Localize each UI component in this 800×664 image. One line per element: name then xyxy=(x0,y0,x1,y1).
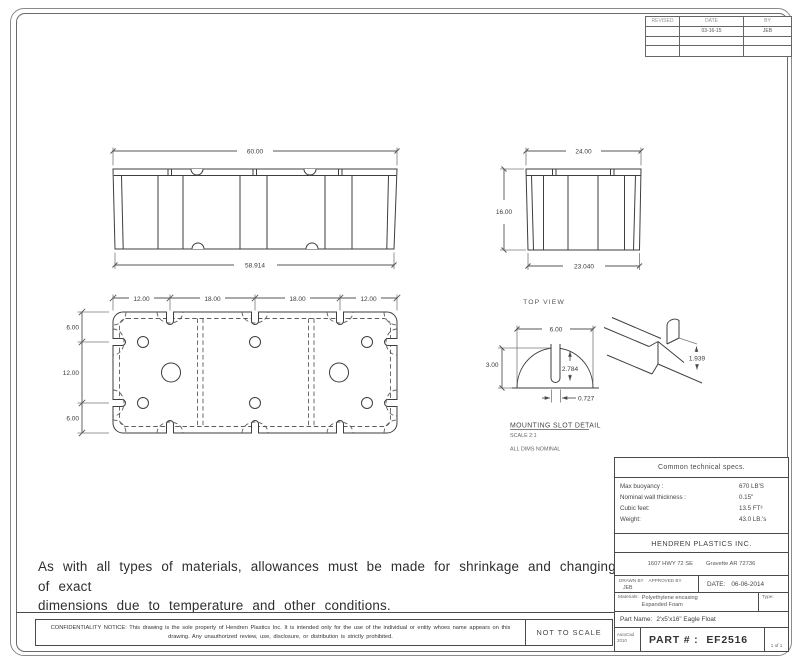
side-height-dim: 16.00 xyxy=(496,209,513,216)
drawn-by-cell: DRAWN BYAPPROVED BY JEB xyxy=(614,575,699,593)
shrinkage-disclaimer: As with all types of materials, allowanc… xyxy=(38,557,620,616)
company-address: 1607 HWY 72 SE Gravette AR 72736 xyxy=(614,552,789,576)
software-version: 2010 xyxy=(617,638,640,644)
top-left-dim-3: 6.00 xyxy=(66,416,79,423)
top-dim-3: 18.00 xyxy=(289,296,306,303)
revision-cell xyxy=(680,46,744,56)
part-name-cell: Part Name: 2'x5'x16" Eagle Float xyxy=(614,611,789,628)
part-number-cell: PART # : EF2516 xyxy=(640,627,765,652)
part-number-value: EF2516 xyxy=(706,634,748,646)
revision-cell xyxy=(744,37,791,47)
side-view: 24.00 23.040 16.00 xyxy=(496,148,641,271)
spec-label: Weight: xyxy=(620,516,641,523)
iso-slot-detail: 1.939 xyxy=(604,318,706,384)
specs-table: Max buoyancy :670 LB'S Nominal wall thic… xyxy=(614,477,789,534)
slot-detail-scale: SCALE 2:1 xyxy=(510,433,537,439)
slot-width-dim: 6.00 xyxy=(550,327,563,334)
company-name: HENDREN PLASTICS INC. xyxy=(614,533,789,553)
spec-value: 670 LB'S xyxy=(739,483,764,490)
type-label: Type: xyxy=(762,595,774,600)
slot-slotwidth-dim: 0.727 xyxy=(578,396,595,403)
side-width-bottom-dim: 23.040 xyxy=(574,264,594,271)
top-left-dim-1: 6.00 xyxy=(66,325,79,332)
materials-label: Materials: xyxy=(618,595,639,611)
spec-row: Cubic feet:13.5 FT³ xyxy=(615,505,788,516)
spec-label: Cubic feet: xyxy=(620,505,650,512)
address-city: Gravette AR 72736 xyxy=(706,561,755,567)
materials-line-1: Polyethylene encasing xyxy=(642,595,698,602)
date-label: DATE: xyxy=(707,581,725,588)
iso-detail-dim: 1.939 xyxy=(689,356,706,363)
disclaimer-line-1: As with all types of materials, allowanc… xyxy=(38,557,620,596)
part-number-label: PART # : xyxy=(649,634,698,646)
spec-value: 0.15" xyxy=(739,494,753,501)
revision-cell xyxy=(646,37,680,47)
confidentiality-notice: CONFIDENTIALITY NOTICE: This drawing is … xyxy=(35,619,526,646)
side-width-top-dim: 24.00 xyxy=(575,149,592,156)
top-view: 12.00 18.00 18.00 12.00 6.00 12.00 6.00 xyxy=(63,295,400,437)
revision-cell xyxy=(744,46,791,56)
spec-label: Nominal wall thickness : xyxy=(620,494,686,501)
top-left-dim-2: 12.00 xyxy=(63,370,80,377)
revision-header-date: DATE xyxy=(680,17,744,27)
spec-row: Weight:43.0 LB.'s xyxy=(615,516,788,527)
spec-value: 43.0 LB.'s xyxy=(739,516,766,523)
specs-title: Common technical specs. xyxy=(614,457,789,478)
date-cell: DATE: 06-06-2014 xyxy=(698,575,789,593)
mounting-slot-detail: 6.00 3.00 2.784 0.727 MOUNTING SLOT DETA… xyxy=(486,326,601,453)
not-to-scale-label: NOT TO SCALE xyxy=(536,628,601,637)
drawn-by-label: DRAWN BY xyxy=(619,578,644,583)
top-dim-2: 18.00 xyxy=(204,296,221,303)
top-dim-1: 12.00 xyxy=(133,296,150,303)
spec-value: 13.5 FT³ xyxy=(739,505,762,512)
top-dim-4: 12.00 xyxy=(360,296,377,303)
revision-cell: JEB xyxy=(744,27,791,37)
title-block: Common technical specs. Max buoyancy :67… xyxy=(614,457,789,652)
sheet-number-cell: 1 of 1 xyxy=(764,627,789,652)
revision-cell xyxy=(646,27,680,37)
revision-cell xyxy=(646,46,680,56)
part-name-value: 2'x5'x16" Eagle Float xyxy=(656,616,715,623)
date-value: 06-06-2014 xyxy=(731,581,764,588)
materials-cell: Materials: Polyethylene encasing Expande… xyxy=(614,592,759,612)
revision-table: REVISED DATE BY 03-16-15 JEB xyxy=(645,16,792,57)
spec-row: Max buoyancy :670 LB'S xyxy=(615,483,788,494)
materials-line-2: Expanded Foam xyxy=(642,602,698,609)
type-cell: Type: xyxy=(758,592,789,612)
front-width-top-dim: 60.00 xyxy=(247,149,264,156)
all-dims-note: ALL DIMS NOMINAL xyxy=(510,447,560,453)
top-view-label: TOP VIEW xyxy=(523,299,565,306)
approved-by-label: APPROVED BY xyxy=(649,578,682,583)
software-cell: AutoCad 2010 xyxy=(614,627,641,652)
revision-header-revised: REVISED xyxy=(646,17,680,27)
not-to-scale-box: NOT TO SCALE xyxy=(525,619,613,646)
confidentiality-text: CONFIDENTIALITY NOTICE: This drawing is … xyxy=(46,624,515,642)
revision-cell xyxy=(680,37,744,47)
address-street: 1607 HWY 72 SE xyxy=(648,561,693,567)
front-view: 60.00 58.914 xyxy=(113,148,397,270)
bottom-separator-line xyxy=(16,612,615,613)
revision-cell: 03-16-15 xyxy=(680,27,744,37)
revision-header-by: BY xyxy=(744,17,791,27)
sheet-number: 1 of 1 xyxy=(771,643,783,648)
drawn-by-value: JEB xyxy=(623,585,698,591)
spec-label: Max buoyancy : xyxy=(620,483,663,490)
drawing-sheet: 60.00 58.914 24.00 23.040 xyxy=(0,0,800,664)
part-name-label: Part Name: xyxy=(620,616,652,623)
slot-detail-title: MOUNTING SLOT DETAIL xyxy=(510,423,601,430)
spec-row: Nominal wall thickness :0.15" xyxy=(615,494,788,505)
slot-height-dim: 3.00 xyxy=(486,362,499,369)
slot-depth-dim: 2.784 xyxy=(562,366,579,373)
front-width-bottom-dim: 58.914 xyxy=(245,263,265,270)
